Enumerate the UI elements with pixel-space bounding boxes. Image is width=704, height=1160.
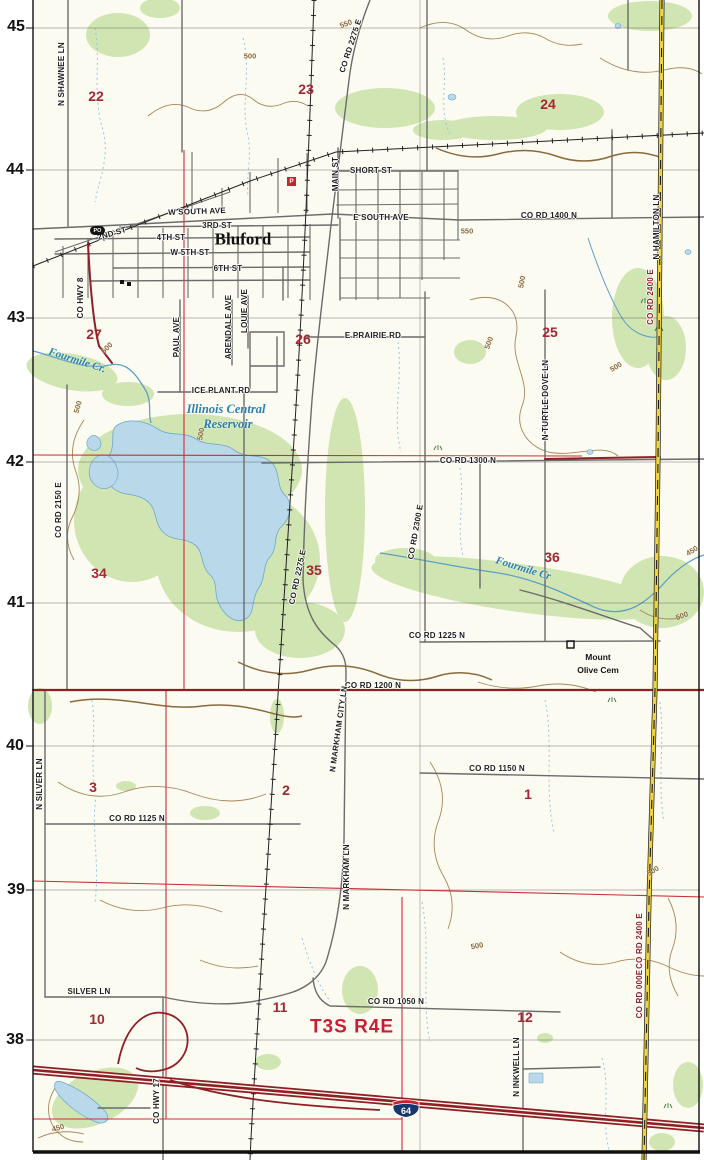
interstate-64-shield: 64 — [392, 1097, 420, 1118]
post-office-square-symbol: P — [287, 177, 296, 186]
topographic-map: 4544434241403938222324272625343536321101… — [0, 0, 704, 1160]
interstate-shield-number: 64 — [401, 1106, 411, 1116]
building-symbol — [127, 282, 131, 286]
map-terrain-graphics — [0, 0, 704, 1160]
post-office-badge-text: PO — [94, 228, 102, 234]
building-symbol — [120, 280, 124, 284]
interstate-shield-icon: 64 — [392, 1097, 420, 1118]
post-office-oval-badge: PO — [90, 226, 105, 235]
p-symbol-text: P — [289, 178, 293, 185]
